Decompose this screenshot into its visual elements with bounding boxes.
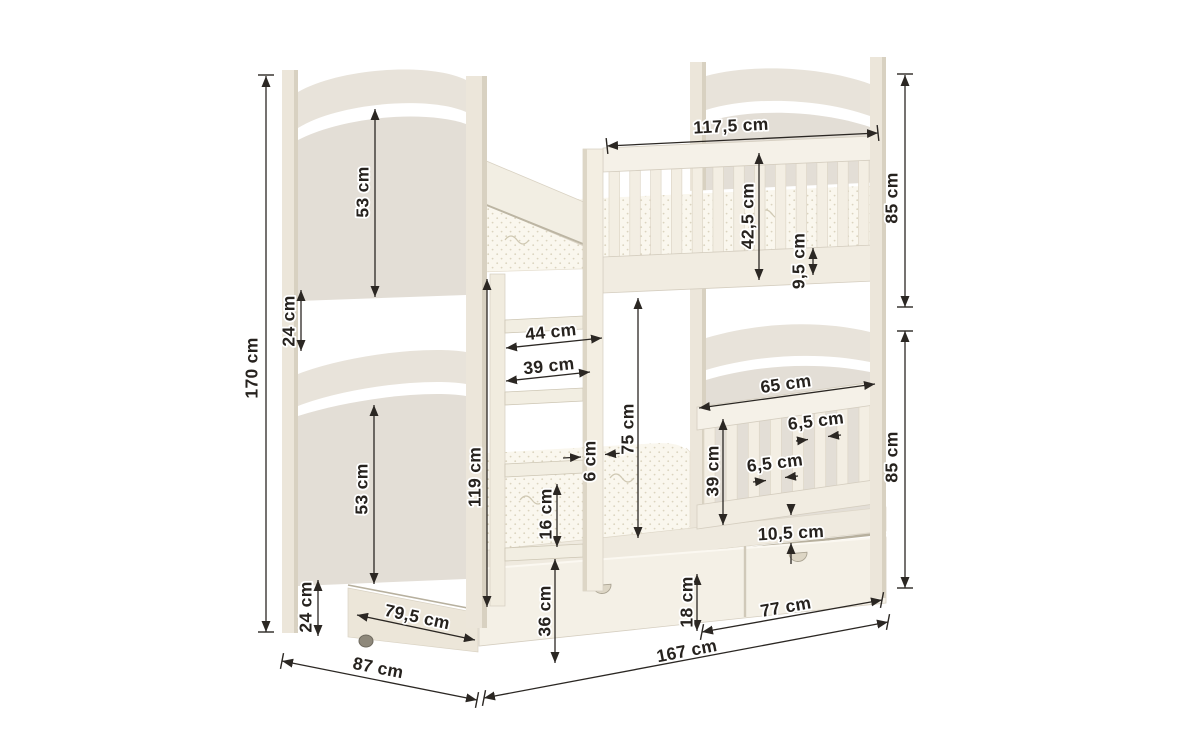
- dimension-label: 75 cm: [618, 403, 638, 454]
- dimension-label: 24 cm: [279, 295, 299, 346]
- left-headboard-back-post-shade: [294, 70, 298, 633]
- dimension-label: 9,5 cm: [789, 233, 809, 289]
- dimension-ladder-inner-width: 39 cm: [506, 353, 590, 381]
- railing-slat: [713, 167, 724, 252]
- ladder-rung: [505, 388, 583, 405]
- dimension-label: 18 cm: [677, 576, 697, 627]
- dimension-label: 117,5 cm: [693, 114, 769, 138]
- left-headboard-upper-panel: [298, 117, 466, 301]
- dimension-label: 44 cm: [524, 319, 577, 344]
- railing-slat: [692, 168, 703, 253]
- railing-slat: [651, 169, 662, 254]
- diagram-canvas: 170 cm53 cm24 cm53 cm24 cm79,5 cm87 cm11…: [0, 0, 1200, 750]
- dimension-label: 36 cm: [535, 585, 555, 636]
- left-headboard-lower-panel: [298, 394, 466, 586]
- left-headboard: [282, 70, 487, 633]
- dimension-drawer-front-height: 18 cm: [677, 574, 697, 631]
- railing-slat: [671, 169, 682, 254]
- railing-slat: [817, 162, 828, 247]
- dimension-label: 167 cm: [655, 635, 719, 666]
- dimension-label: 170 cm: [242, 337, 262, 398]
- railing-slat: [775, 164, 786, 249]
- dimension-label: 42,5 cm: [738, 183, 758, 249]
- railing-slat: [859, 160, 870, 245]
- left-headboard-front-post-shade: [482, 76, 487, 628]
- right-headboard-lower-arc-rail: [706, 324, 870, 370]
- dimension-label: 85 cm: [882, 431, 902, 482]
- dimension-label: 16 cm: [536, 488, 556, 539]
- dimension-upper-section-height: 85 cm: [882, 74, 913, 307]
- dimension-label: 53 cm: [352, 463, 372, 514]
- dimension-label: 10,5 cm: [757, 521, 824, 544]
- dimension-label: 24 cm: [296, 581, 316, 632]
- railing-slat: [838, 161, 849, 246]
- railing-slat: [859, 404, 870, 484]
- dimension-label: 87 cm: [351, 653, 405, 682]
- dimension-label: 6 cm: [580, 440, 600, 481]
- dimension-mattress-height: 16 cm: [536, 484, 557, 547]
- ladder-right-stile-shade: [583, 149, 587, 591]
- dimension-upper-gap-height: 24 cm: [279, 290, 301, 351]
- railing-slat: [609, 171, 620, 256]
- right-headboard-upper-arc-rail: [706, 68, 870, 116]
- ladder-left-stile: [490, 274, 505, 606]
- dimension-total-height: 170 cm: [242, 75, 274, 632]
- railing-slat: [630, 170, 641, 255]
- railing-slat: [726, 422, 737, 502]
- dimension-label: 119 cm: [465, 447, 485, 507]
- bunk-bed-dimension-diagram: 170 cm53 cm24 cm53 cm24 cm79,5 cm87 cm11…: [0, 0, 1200, 750]
- dimension-bed-width: 87 cm: [280, 653, 478, 708]
- dimension-bottom-gap-height: 24 cm: [296, 580, 318, 636]
- dimension-label: 39 cm: [703, 445, 723, 496]
- dimension-label: 53 cm: [353, 166, 373, 217]
- drawer-caster-wheel: [359, 635, 373, 647]
- dimension-label: 85 cm: [882, 172, 902, 223]
